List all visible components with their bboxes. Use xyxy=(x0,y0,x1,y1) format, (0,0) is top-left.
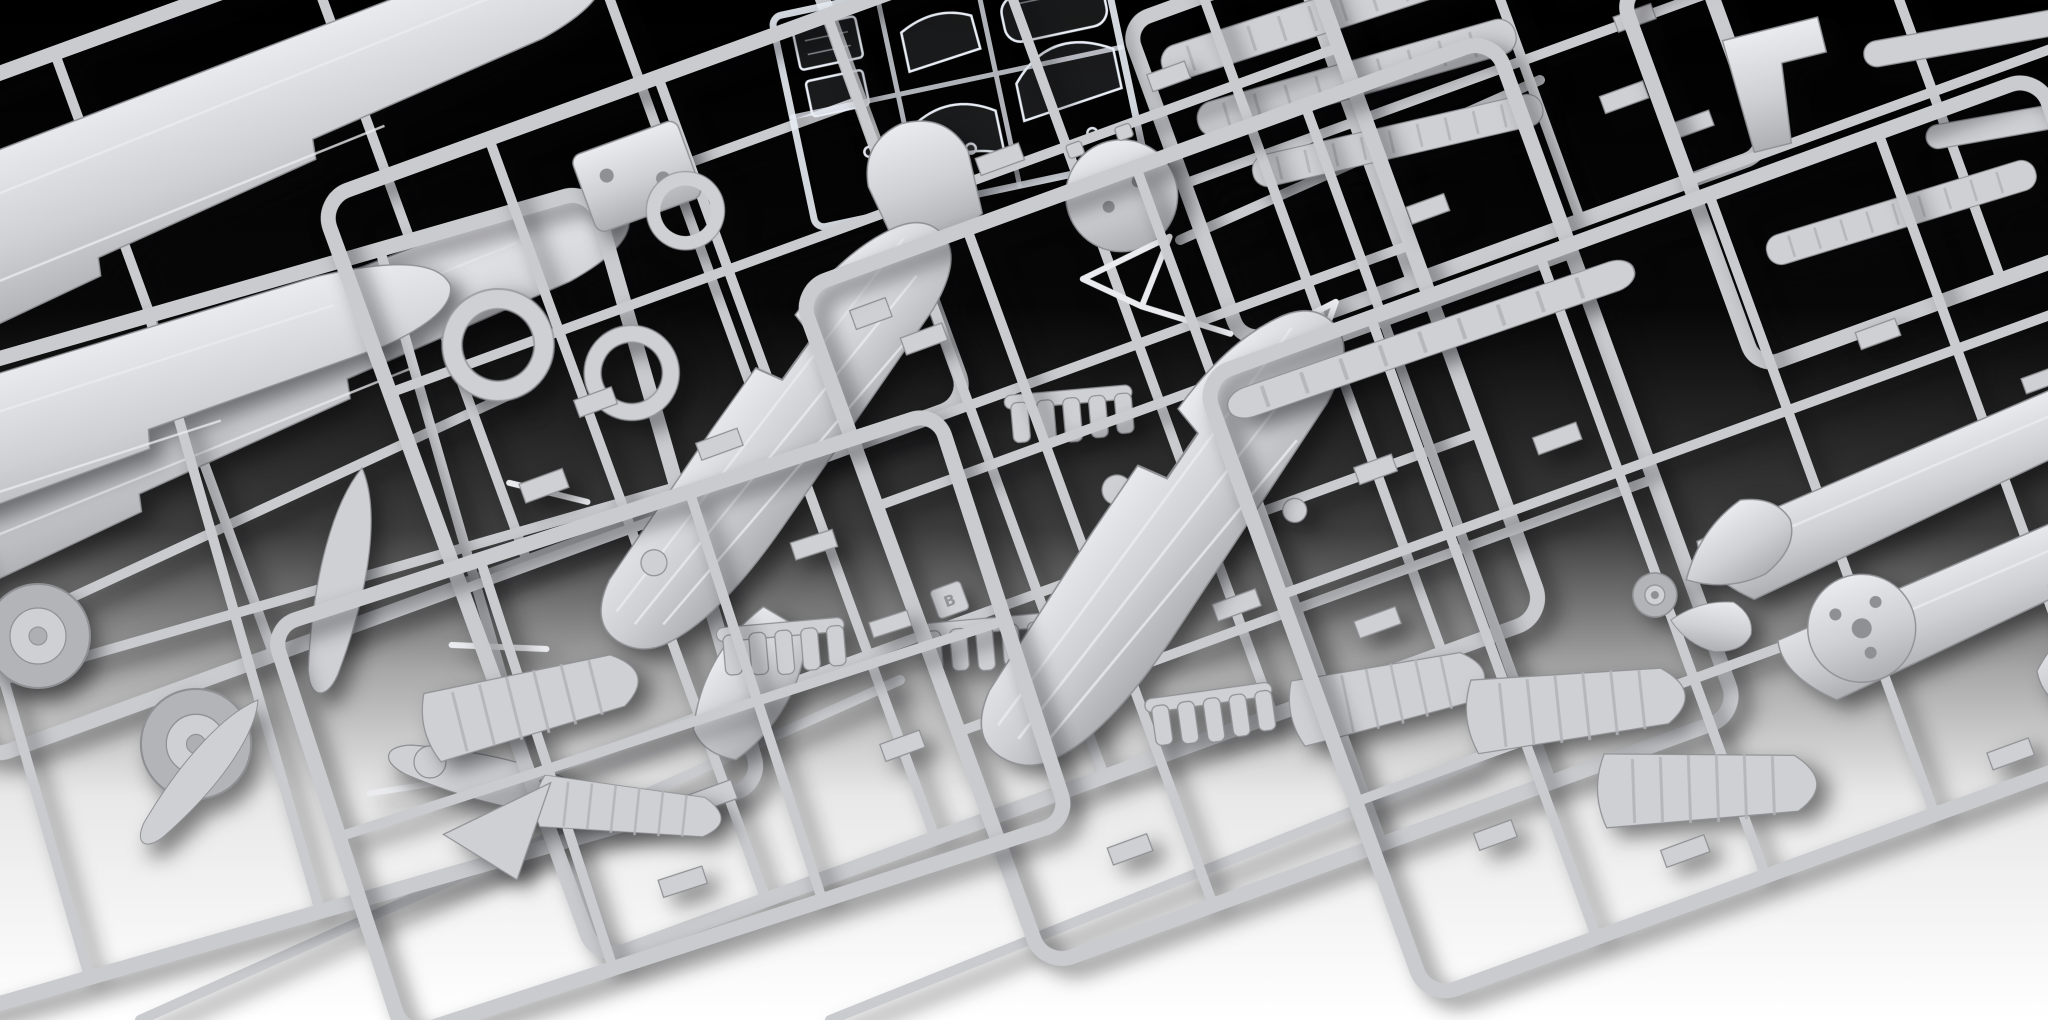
model-kit-sprues-photo: B xyxy=(0,0,2048,1020)
main-wheel xyxy=(0,584,90,688)
photo-canvas: B xyxy=(0,0,2048,1020)
